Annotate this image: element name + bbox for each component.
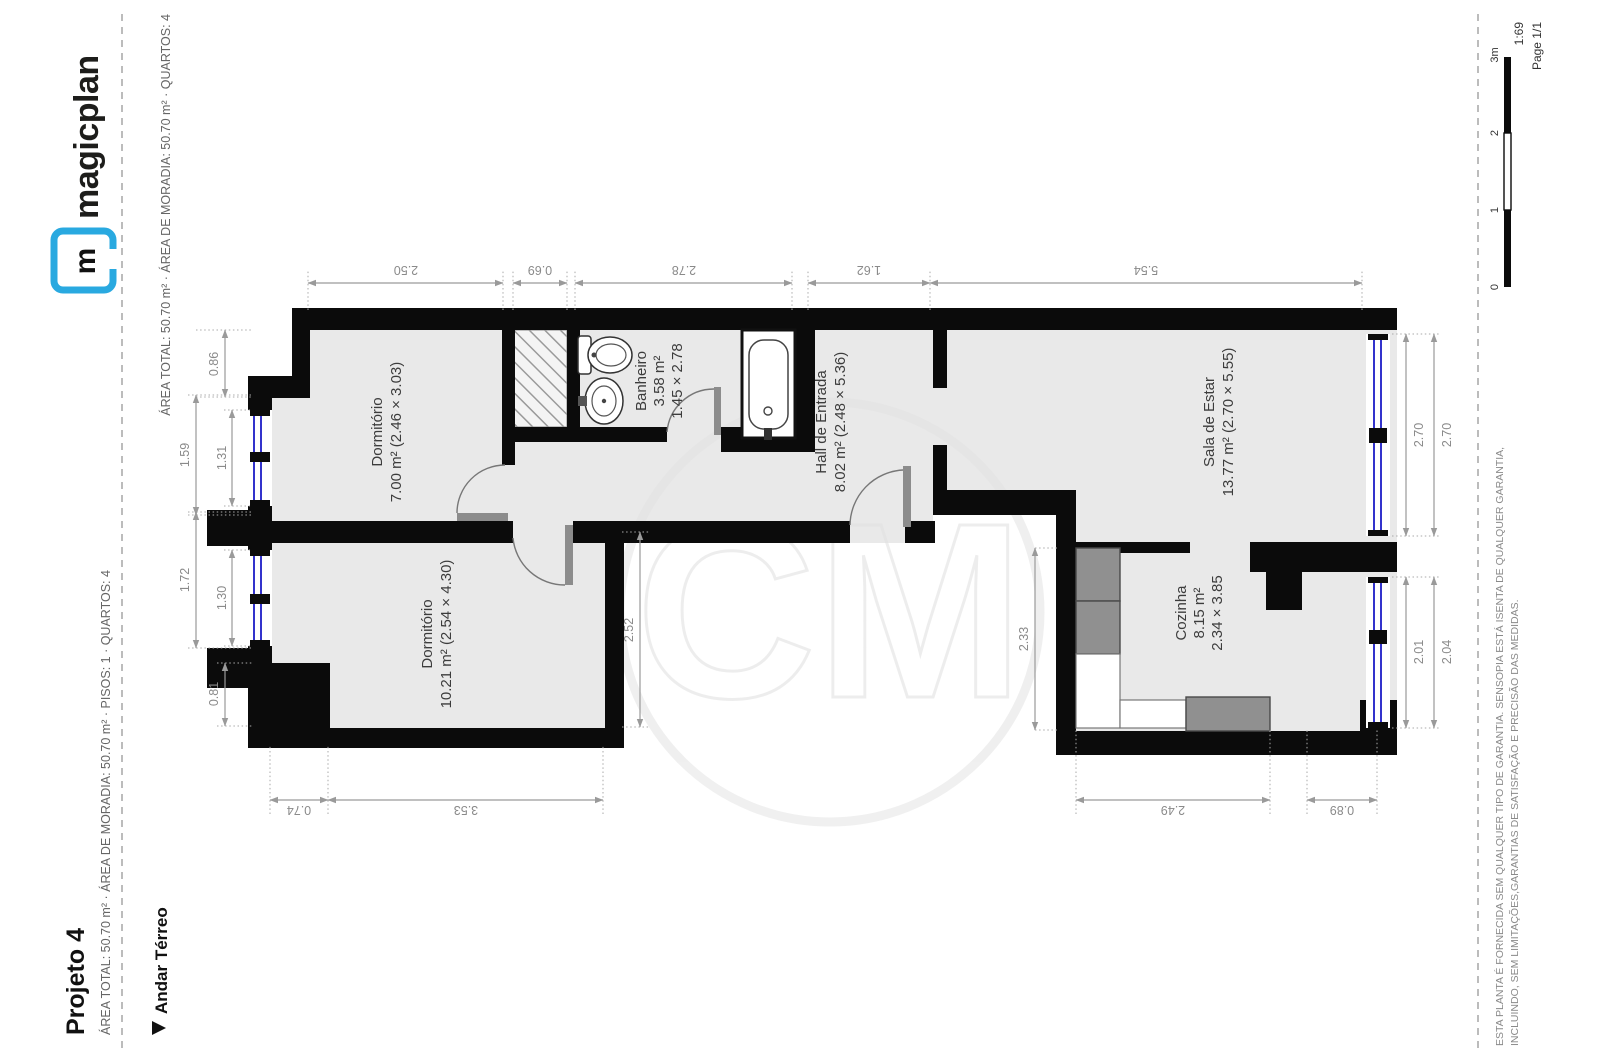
disclaimer-line2: INCLUINDO, SEM LIMITAÇÕES,GARANTIAS DE S…	[1508, 599, 1521, 1046]
room-area: 13.77 m² (2.70 × 5.55)	[1220, 348, 1237, 497]
dim-label: 3.53	[454, 803, 478, 817]
dim-label: 1.62	[857, 263, 881, 277]
window-cozinha	[1366, 577, 1390, 728]
toilet-icon	[578, 336, 632, 374]
plan-svg: Projeto 4 ÁREA TOTAL: 50.70 m² · ÁREA DE…	[0, 0, 1600, 1062]
room-name: Cozinha	[1173, 585, 1190, 641]
dim-label: 1.30	[215, 586, 229, 610]
counter-block	[1186, 697, 1270, 731]
dim-label: 2.01	[1412, 640, 1426, 664]
room-area: 7.00 m² (2.46 × 3.03)	[388, 362, 405, 503]
counter-white	[1076, 654, 1120, 728]
footer: ESTA PLANTA É FORNECIDA SEM QUALQUER TIP…	[1478, 14, 1544, 1048]
counter-block	[1076, 601, 1120, 654]
window-sala	[1366, 334, 1390, 536]
room-name: Dormitório	[419, 599, 436, 668]
dim-label: 2.04	[1440, 640, 1454, 664]
floorplan-export-page: Projeto 4 ÁREA TOTAL: 50.70 m² · ÁREA DE…	[0, 0, 1600, 1062]
room-area: 10.21 m² (2.54 × 4.30)	[438, 560, 455, 709]
magicplan-logo: m magicplan	[54, 55, 118, 290]
dim-label: 0.89	[1330, 803, 1354, 817]
dim-label: 0.69	[528, 263, 552, 277]
dim-label: 1.59	[178, 443, 192, 467]
dim-label: 2.50	[394, 263, 418, 277]
window-dorm10	[248, 550, 272, 646]
page-subtitle: ÁREA TOTAL: 50.70 m² · ÁREA DE MORADIA: …	[98, 570, 113, 1035]
room-dims: 2.34 × 3.85	[1209, 575, 1226, 650]
dim-label: 2.33	[1017, 627, 1031, 651]
scale-tick: 1	[1489, 207, 1501, 213]
shower-area	[508, 330, 567, 427]
dim-label: 0.86	[207, 352, 221, 376]
logo-square-gap	[104, 249, 118, 269]
dim-label: 2.78	[672, 263, 696, 277]
floorplan: CM	[178, 263, 1454, 822]
disclaimer-line1: ESTA PLANTA É FORNECIDA SEM QUALQUER TIP…	[1493, 447, 1506, 1046]
window-dorm7	[248, 410, 272, 506]
dim-label: 2.70	[1440, 423, 1454, 447]
dim-label: 2.52	[622, 618, 636, 642]
dim-label: 1.72	[178, 568, 192, 592]
floor-label: Andar Térreo	[152, 907, 171, 1014]
room-name: Sala de Estar	[1201, 377, 1218, 467]
counter-block	[1076, 548, 1120, 601]
page-title: Projeto 4	[62, 928, 90, 1035]
dim-label: 0.81	[207, 682, 221, 706]
dim-label: 1.31	[215, 446, 229, 470]
logo-m-icon: m	[69, 248, 102, 275]
header: Projeto 4 ÁREA TOTAL: 50.70 m² · ÁREA DE…	[54, 14, 173, 1048]
dim-label: 5.54	[1134, 263, 1158, 277]
scale-ratio: 1:69	[1512, 22, 1526, 46]
floor-triangle-icon	[152, 1021, 166, 1035]
room-name: Dormitório	[369, 397, 386, 466]
scale-tick: 2	[1489, 130, 1501, 136]
dim-label: 2.49	[1161, 803, 1185, 817]
bathtub-icon	[742, 330, 795, 440]
room-area: 3.58 m²	[651, 356, 668, 407]
room-name: Banheiro	[633, 351, 650, 411]
brand-name: magicplan	[68, 55, 106, 219]
scale-bar: 0 1 2 3m	[1489, 47, 1511, 290]
room-dims: 1.45 × 2.78	[669, 343, 686, 418]
dim-label: 0.74	[287, 803, 311, 817]
scale-tick: 0	[1489, 284, 1501, 290]
portrait-sheet: Projeto 4 ÁREA TOTAL: 50.70 m² · ÁREA DE…	[0, 0, 1600, 1062]
dim-label: 2.70	[1412, 423, 1426, 447]
page-number: Page 1/1	[1530, 22, 1544, 70]
counter-white	[1120, 700, 1186, 728]
room-area: 8.15 m²	[1191, 588, 1208, 639]
scale-tick: 3m	[1489, 47, 1501, 62]
floor-summary: ÁREA TOTAL: 50.70 m² · ÁREA DE MORADIA: …	[158, 14, 173, 416]
room-name: Hall de Entrada	[813, 370, 830, 474]
room-area: 8.02 m² (2.48 × 5.36)	[832, 352, 849, 493]
